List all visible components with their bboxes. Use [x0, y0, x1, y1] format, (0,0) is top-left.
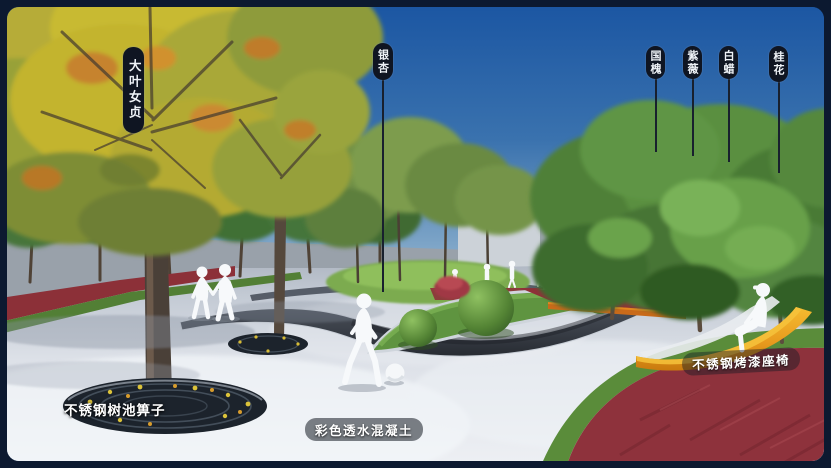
label-pole-guohuai — [655, 78, 657, 152]
label-pole-ziwei — [692, 78, 694, 156]
plant-label-dayenvzhen: 大叶女贞 — [123, 47, 144, 133]
image-frame: 大叶女贞 银杏 国槐 紫薇 白蜡 桂花 不锈钢树池箅子 彩色透水混凝土 不锈钢烤… — [0, 0, 831, 468]
label-pole-guihua — [778, 81, 780, 173]
material-label-permeable-concrete: 彩色透水混凝土 — [305, 418, 423, 441]
plant-label-guihua: 桂花 — [769, 46, 788, 82]
plant-label-baila: 白蜡 — [719, 46, 738, 79]
plant-label-guohuai: 国槐 — [646, 46, 665, 79]
tree-pit-mid — [228, 333, 308, 355]
plant-label-ziwei: 紫薇 — [683, 46, 702, 79]
label-pole-yinxing — [382, 79, 384, 292]
plant-label-yinxing: 银杏 — [373, 43, 393, 80]
material-label-tree-pit-grate: 不锈钢树池箅子 — [64, 399, 166, 419]
label-pole-baila — [728, 78, 730, 162]
